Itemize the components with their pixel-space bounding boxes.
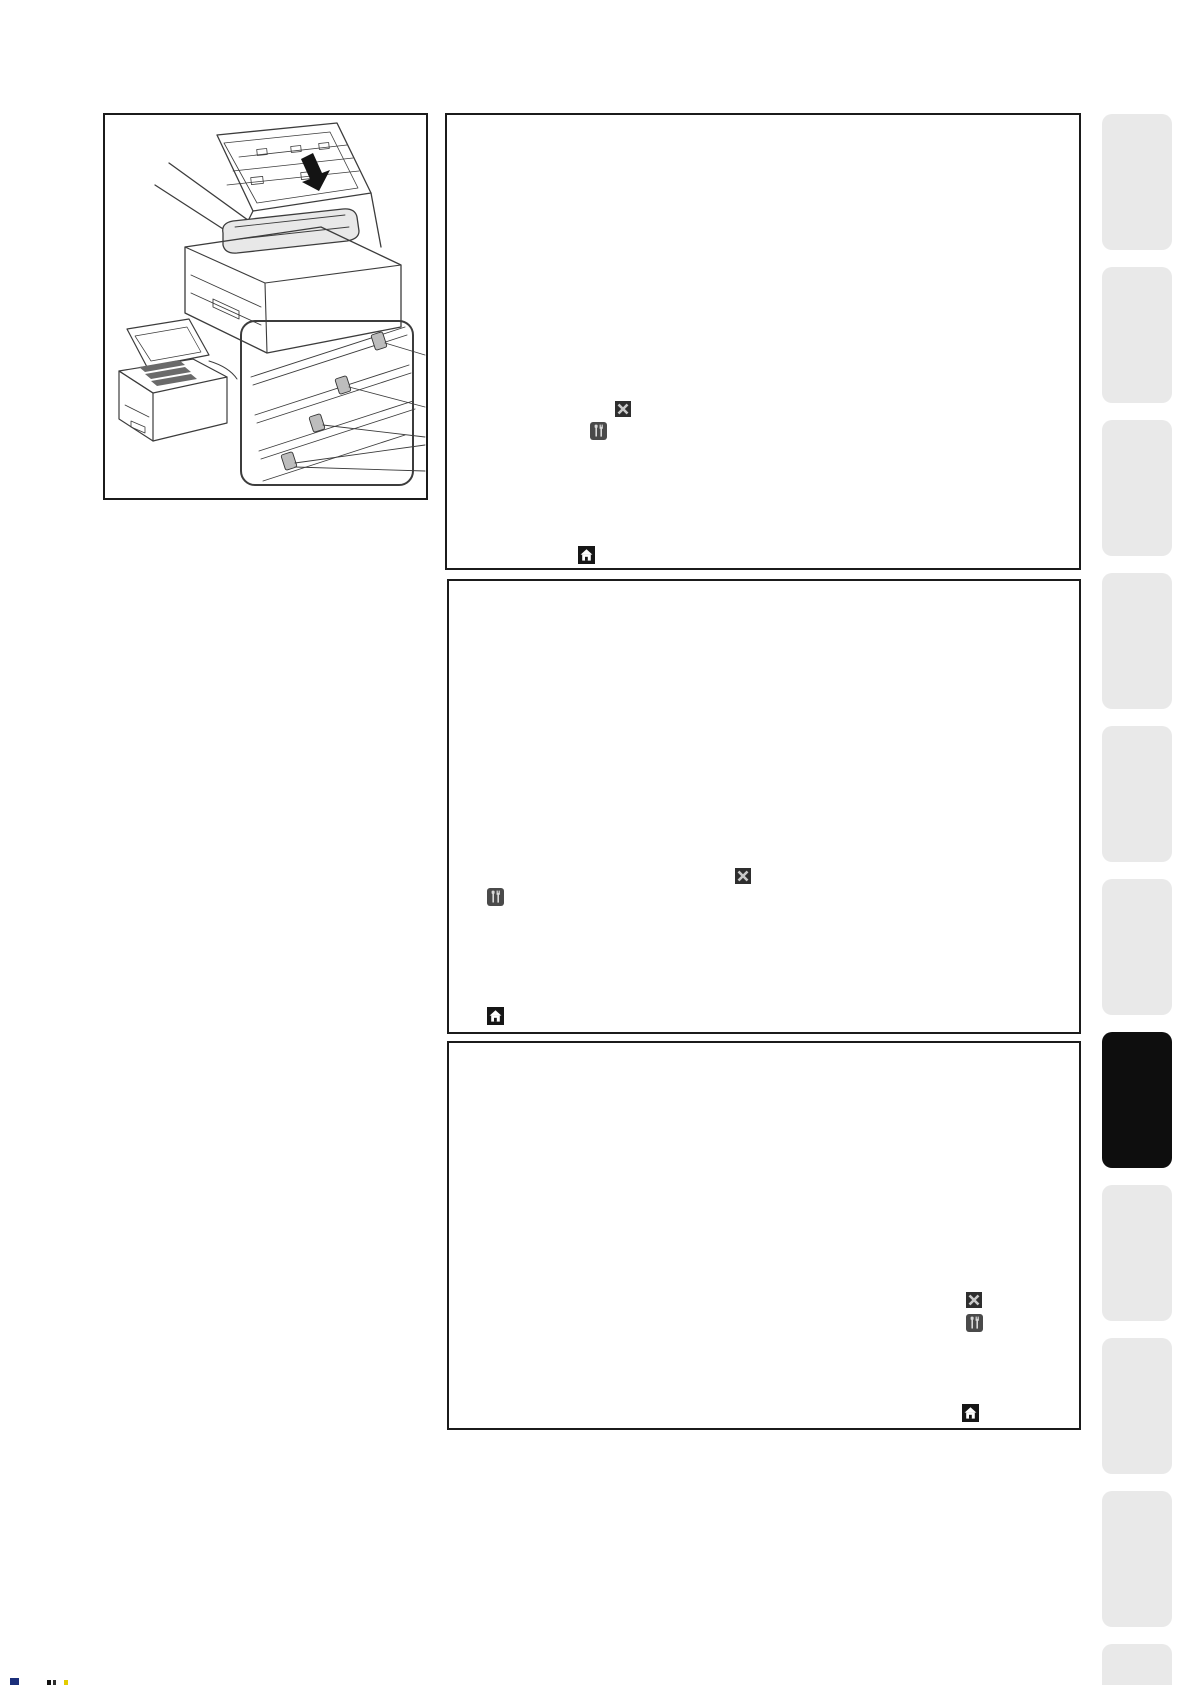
printer-illustration bbox=[105, 115, 426, 498]
chapter-tab bbox=[1102, 114, 1172, 250]
chapter-tab-active bbox=[1102, 1032, 1172, 1168]
note-box-3 bbox=[447, 1041, 1081, 1430]
note-box-2 bbox=[447, 579, 1081, 1034]
home-icon bbox=[578, 546, 595, 564]
registration-mark bbox=[64, 1680, 68, 1685]
cancel-x-icon bbox=[735, 868, 751, 884]
chapter-tab bbox=[1102, 573, 1172, 709]
chapter-tab bbox=[1102, 420, 1172, 556]
home-icon bbox=[962, 1404, 979, 1422]
registration-mark bbox=[53, 1680, 56, 1685]
toolbox-icon bbox=[487, 888, 504, 906]
cancel-x-icon bbox=[615, 401, 631, 417]
chapter-tab bbox=[1102, 1185, 1172, 1321]
home-icon bbox=[487, 1007, 504, 1025]
toolbox-icon bbox=[590, 422, 607, 440]
registration-mark bbox=[10, 1678, 19, 1685]
toolbox-icon bbox=[966, 1314, 983, 1332]
cancel-x-icon bbox=[966, 1292, 982, 1308]
chapter-tab bbox=[1102, 1491, 1172, 1627]
chapter-tab bbox=[1102, 1644, 1172, 1685]
registration-mark bbox=[47, 1680, 51, 1685]
figure-box bbox=[103, 113, 428, 500]
chapter-tab bbox=[1102, 726, 1172, 862]
chapter-tab bbox=[1102, 879, 1172, 1015]
note-box-1 bbox=[445, 113, 1081, 570]
chapter-tab bbox=[1102, 1338, 1172, 1474]
chapter-tab bbox=[1102, 267, 1172, 403]
manual-page bbox=[0, 0, 1192, 1685]
